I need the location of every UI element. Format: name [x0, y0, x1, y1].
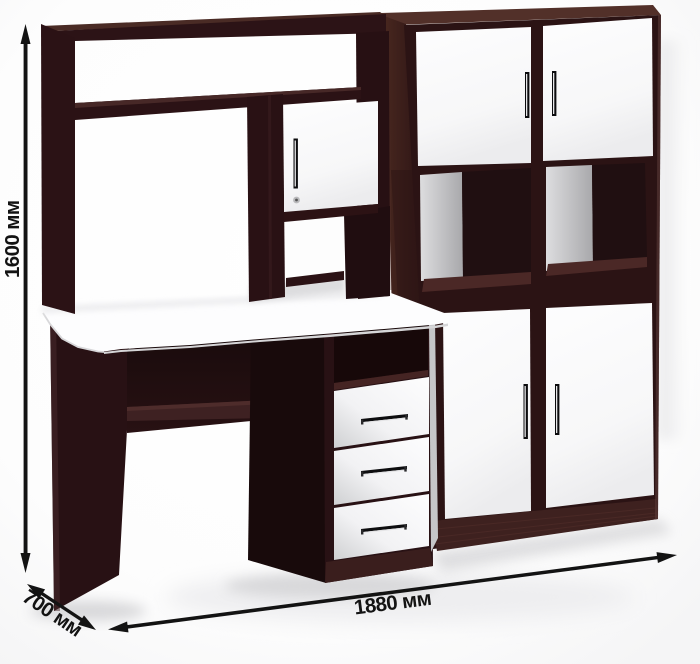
svg-text:1600 мм: 1600 мм [1, 201, 24, 278]
